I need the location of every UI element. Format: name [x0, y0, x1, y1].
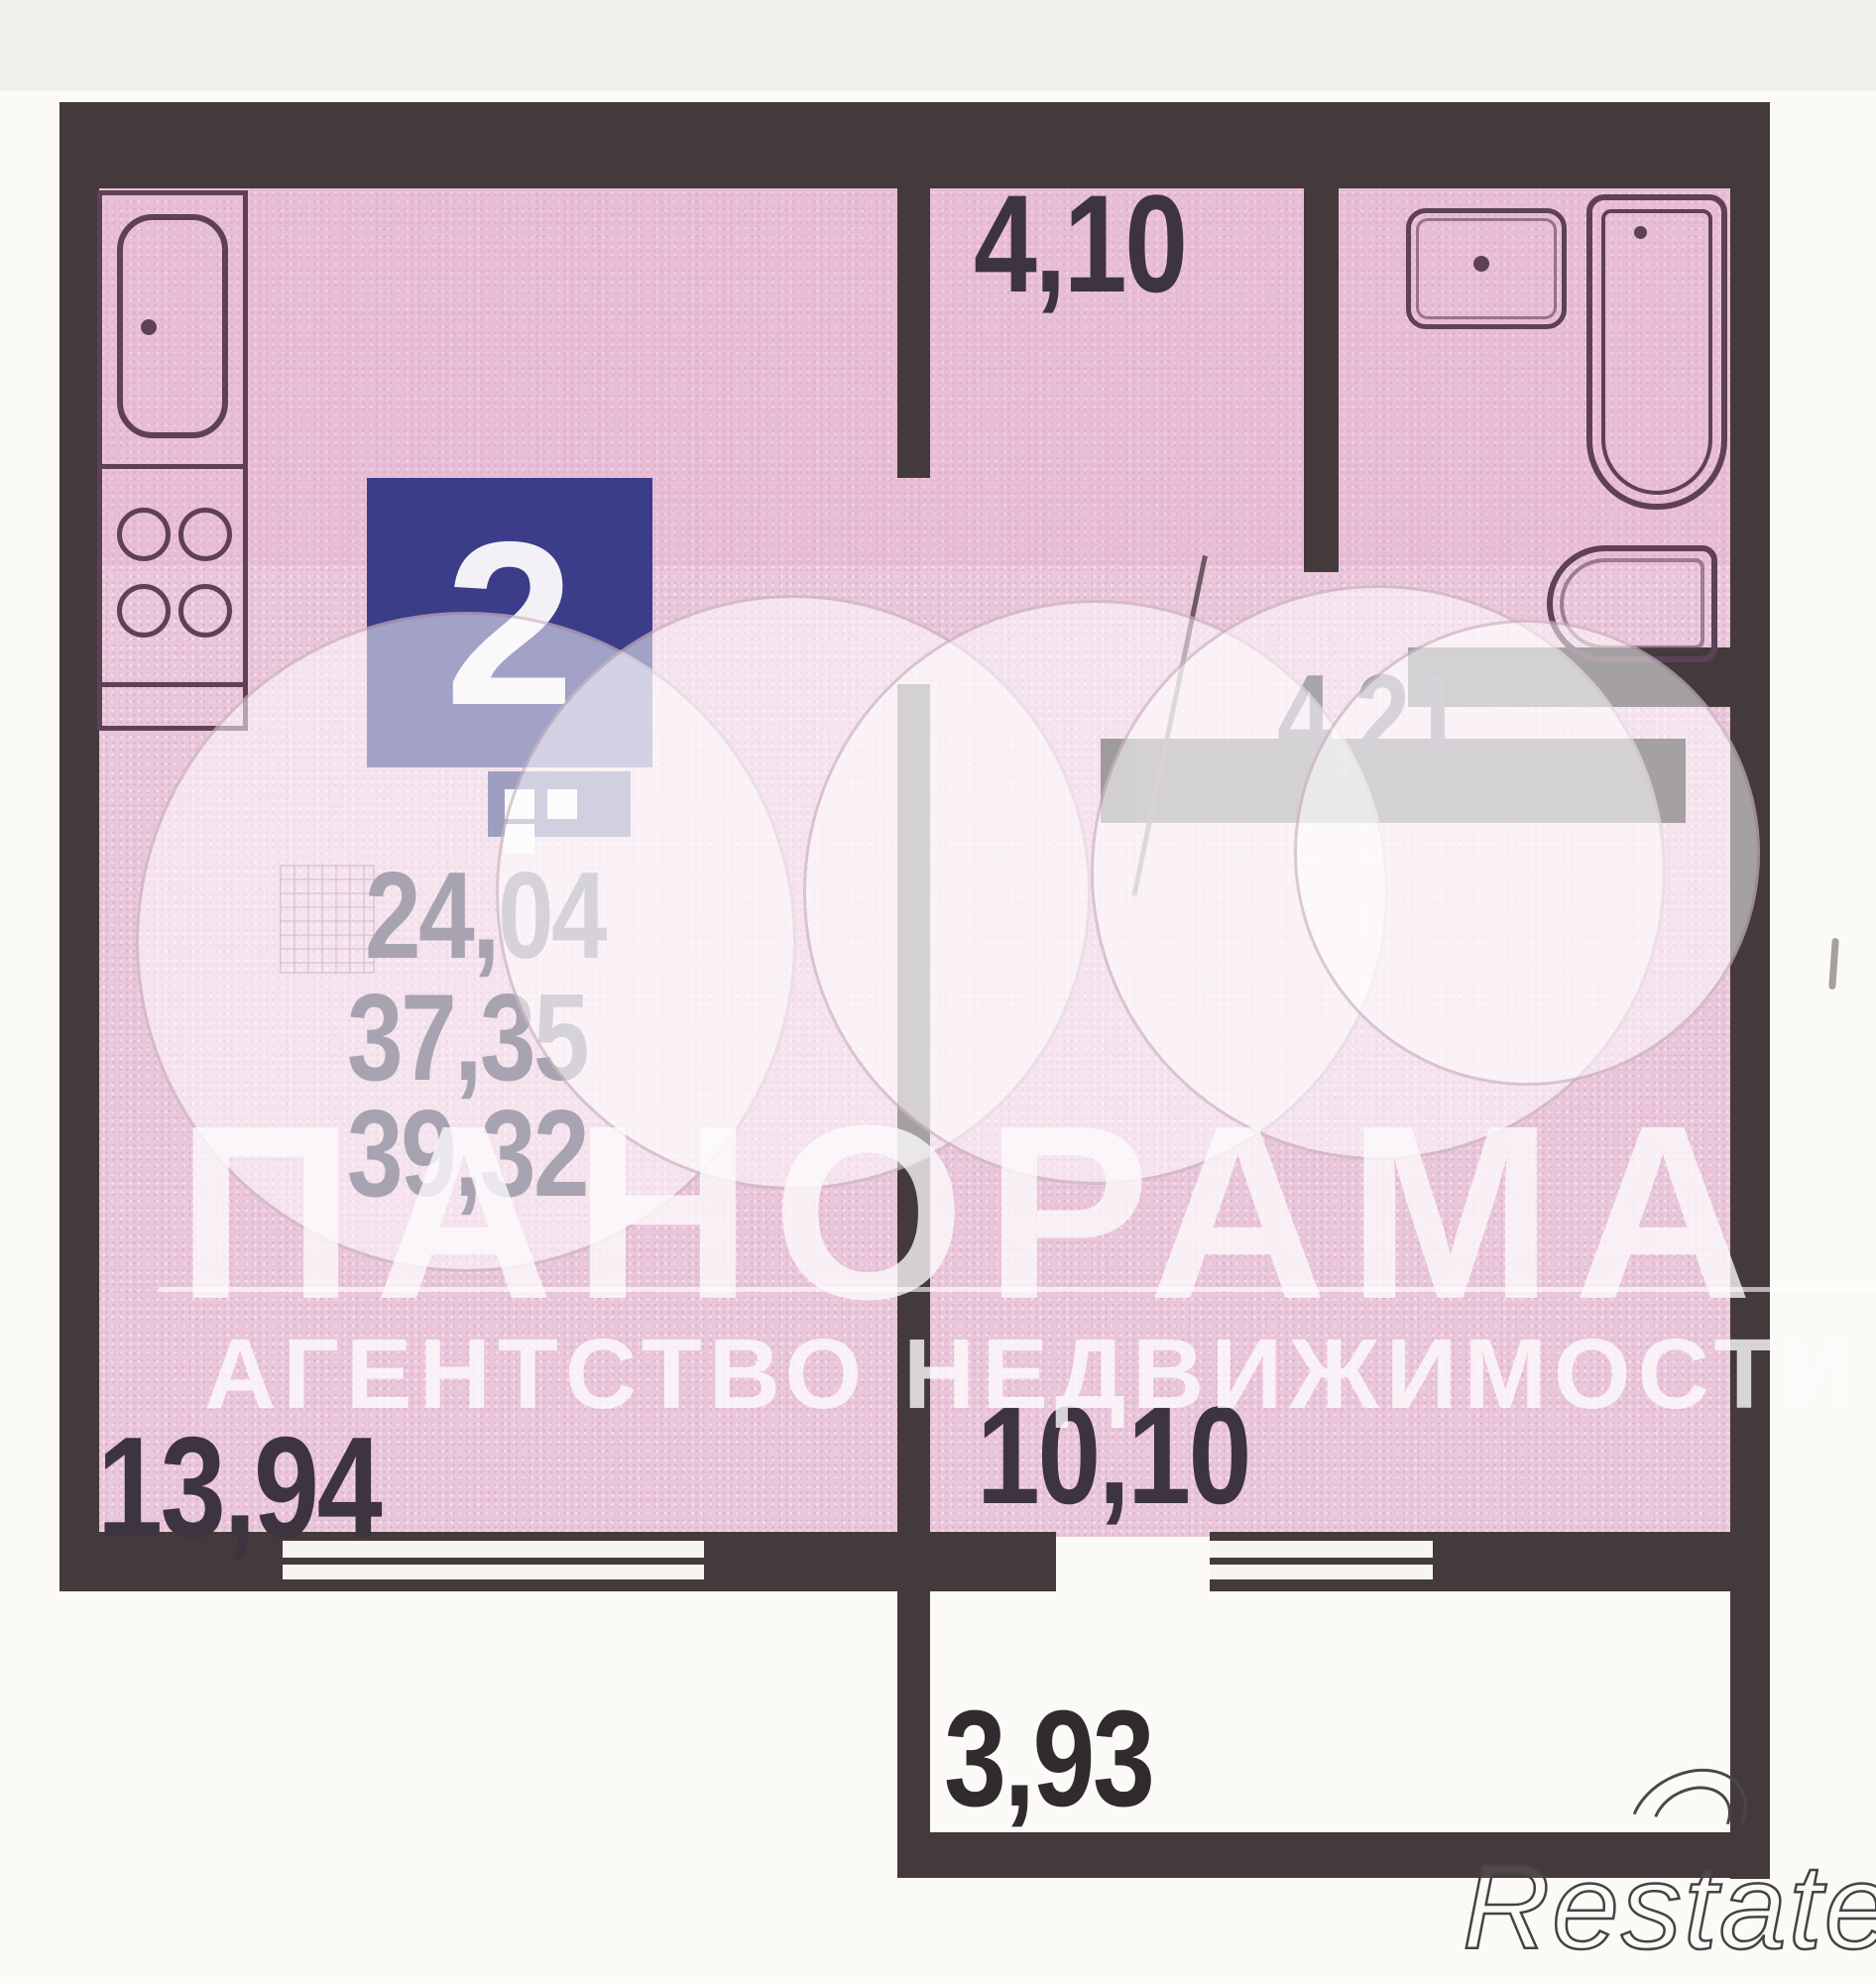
room-label-hallway: 4,10 — [974, 175, 1186, 313]
scan-speck — [1828, 938, 1839, 990]
page-top-strip — [0, 0, 1876, 91]
wall-bathroom-left — [1304, 188, 1339, 572]
window-room — [1210, 1532, 1433, 1591]
stove-icon — [97, 464, 248, 687]
room-label-balcony: 3,93 — [944, 1691, 1152, 1827]
kitchen-sink-icon — [117, 214, 228, 438]
room-label-kitchen-living: 13,94 — [97, 1416, 380, 1560]
watermark-title: ПАНОРАМА — [176, 1089, 1772, 1337]
watermark-circle — [1294, 620, 1760, 1086]
wall-bottom-b — [704, 1532, 1056, 1591]
wall-bottom-c — [1433, 1532, 1770, 1591]
wall-right — [1730, 102, 1770, 1879]
wall-hallway-upper — [897, 188, 930, 478]
wall-top — [59, 102, 1770, 188]
floorplan-scan: 2 4,10 4,21 13,94 10,10 3,93 24,04 37,35… — [0, 0, 1876, 1983]
restate-logo: Restate — [1463, 1846, 1876, 1967]
wall-left — [59, 102, 99, 1591]
bathtub-icon — [1586, 194, 1727, 510]
watermark-subtitle: АГЕНТСТВО НЕДВИЖИМОСТИ — [204, 1325, 1859, 1424]
